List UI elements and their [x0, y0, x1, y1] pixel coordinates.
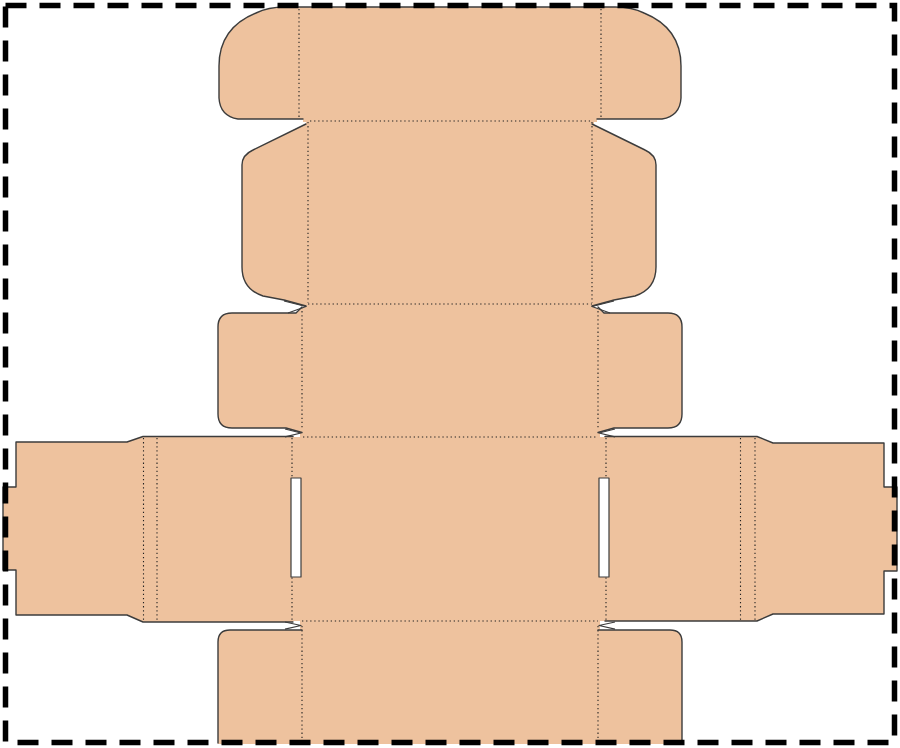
back-panel-fill — [300, 621, 600, 744]
left-lock-slot — [291, 478, 301, 577]
front-panel-fill — [300, 304, 600, 437]
lower-left-slit-tip — [285, 622, 301, 629]
left-side-wing-fill — [3, 437, 293, 622]
front-left-flap-fill — [218, 307, 302, 433]
back-left-flap-fill — [218, 630, 302, 744]
front-right-flap-fill — [598, 307, 682, 433]
board-panels-group — [3, 7, 897, 744]
box-dieline-svg — [0, 0, 900, 748]
lid-top-panel-fill — [306, 121, 594, 304]
right-side-wing-fill — [605, 437, 897, 621]
back-right-flap-fill — [598, 630, 682, 744]
tuck-flap-fill — [219, 7, 681, 122]
right-lock-slot — [599, 478, 609, 577]
page-canvas — [0, 0, 900, 748]
base-panel-fill — [292, 437, 606, 621]
lower-right-slit-tip — [599, 622, 615, 629]
